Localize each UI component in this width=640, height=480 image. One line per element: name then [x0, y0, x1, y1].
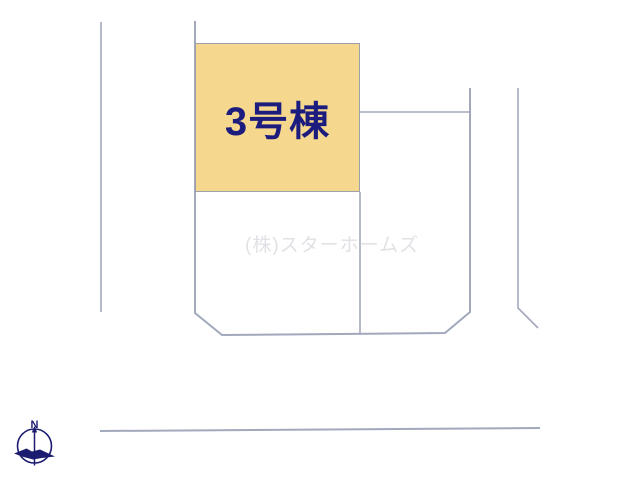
building-3-block: 3号棟: [195, 43, 360, 192]
compass-icon: N: [12, 418, 72, 476]
site-plan: 3号棟 (株)スターホームズ N: [0, 0, 640, 480]
east-boundary-line: [518, 88, 538, 328]
building-3-label: 3号棟: [225, 89, 330, 147]
road-line: [100, 428, 540, 431]
